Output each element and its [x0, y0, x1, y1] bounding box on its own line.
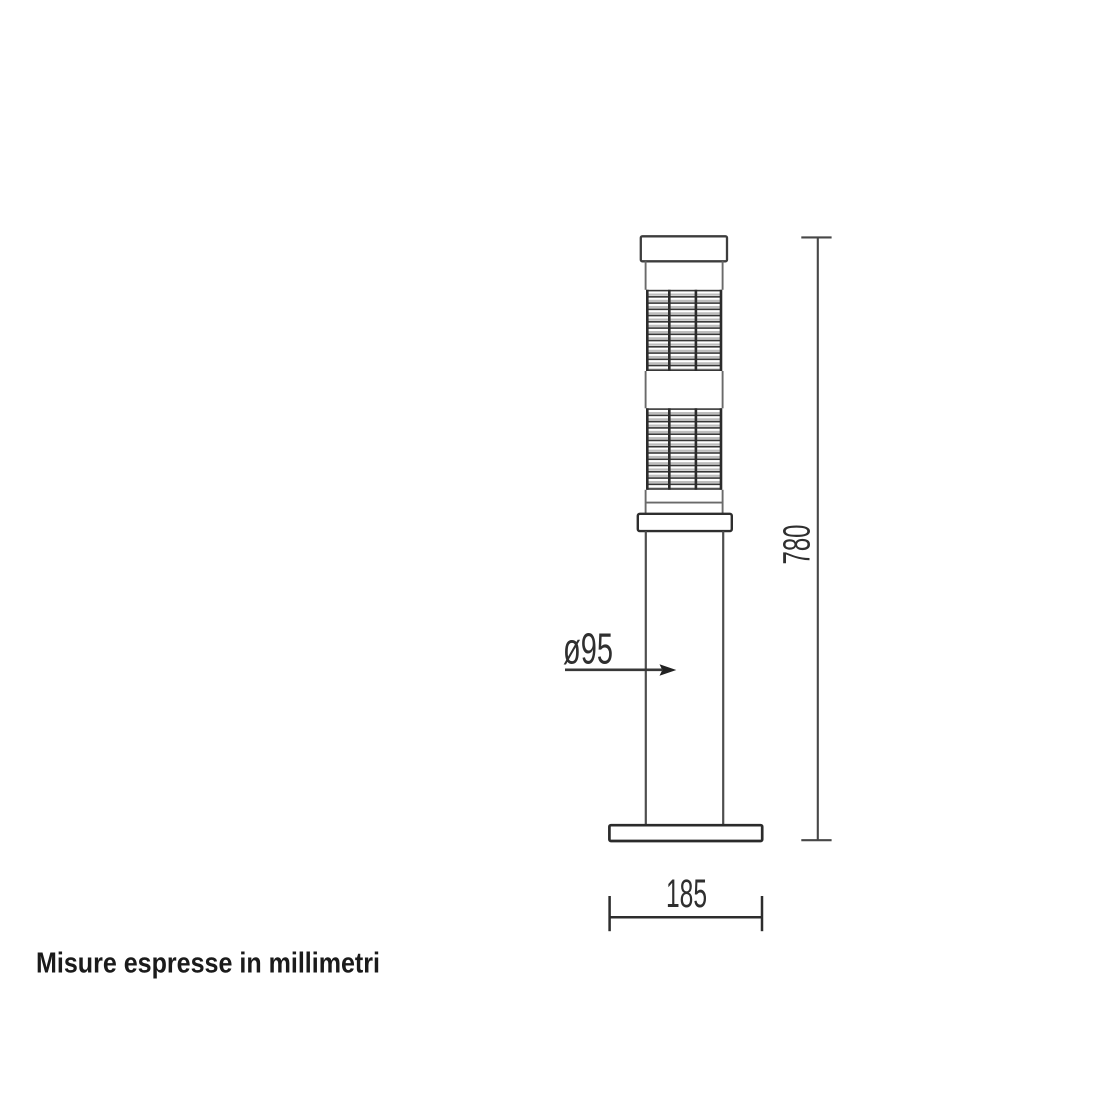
svg-text:Misure espresse in millimetri: Misure espresse in millimetri: [36, 948, 380, 980]
svg-text:185: 185: [666, 872, 707, 916]
svg-text:780: 780: [777, 525, 819, 565]
svg-text:ø95: ø95: [563, 625, 613, 674]
